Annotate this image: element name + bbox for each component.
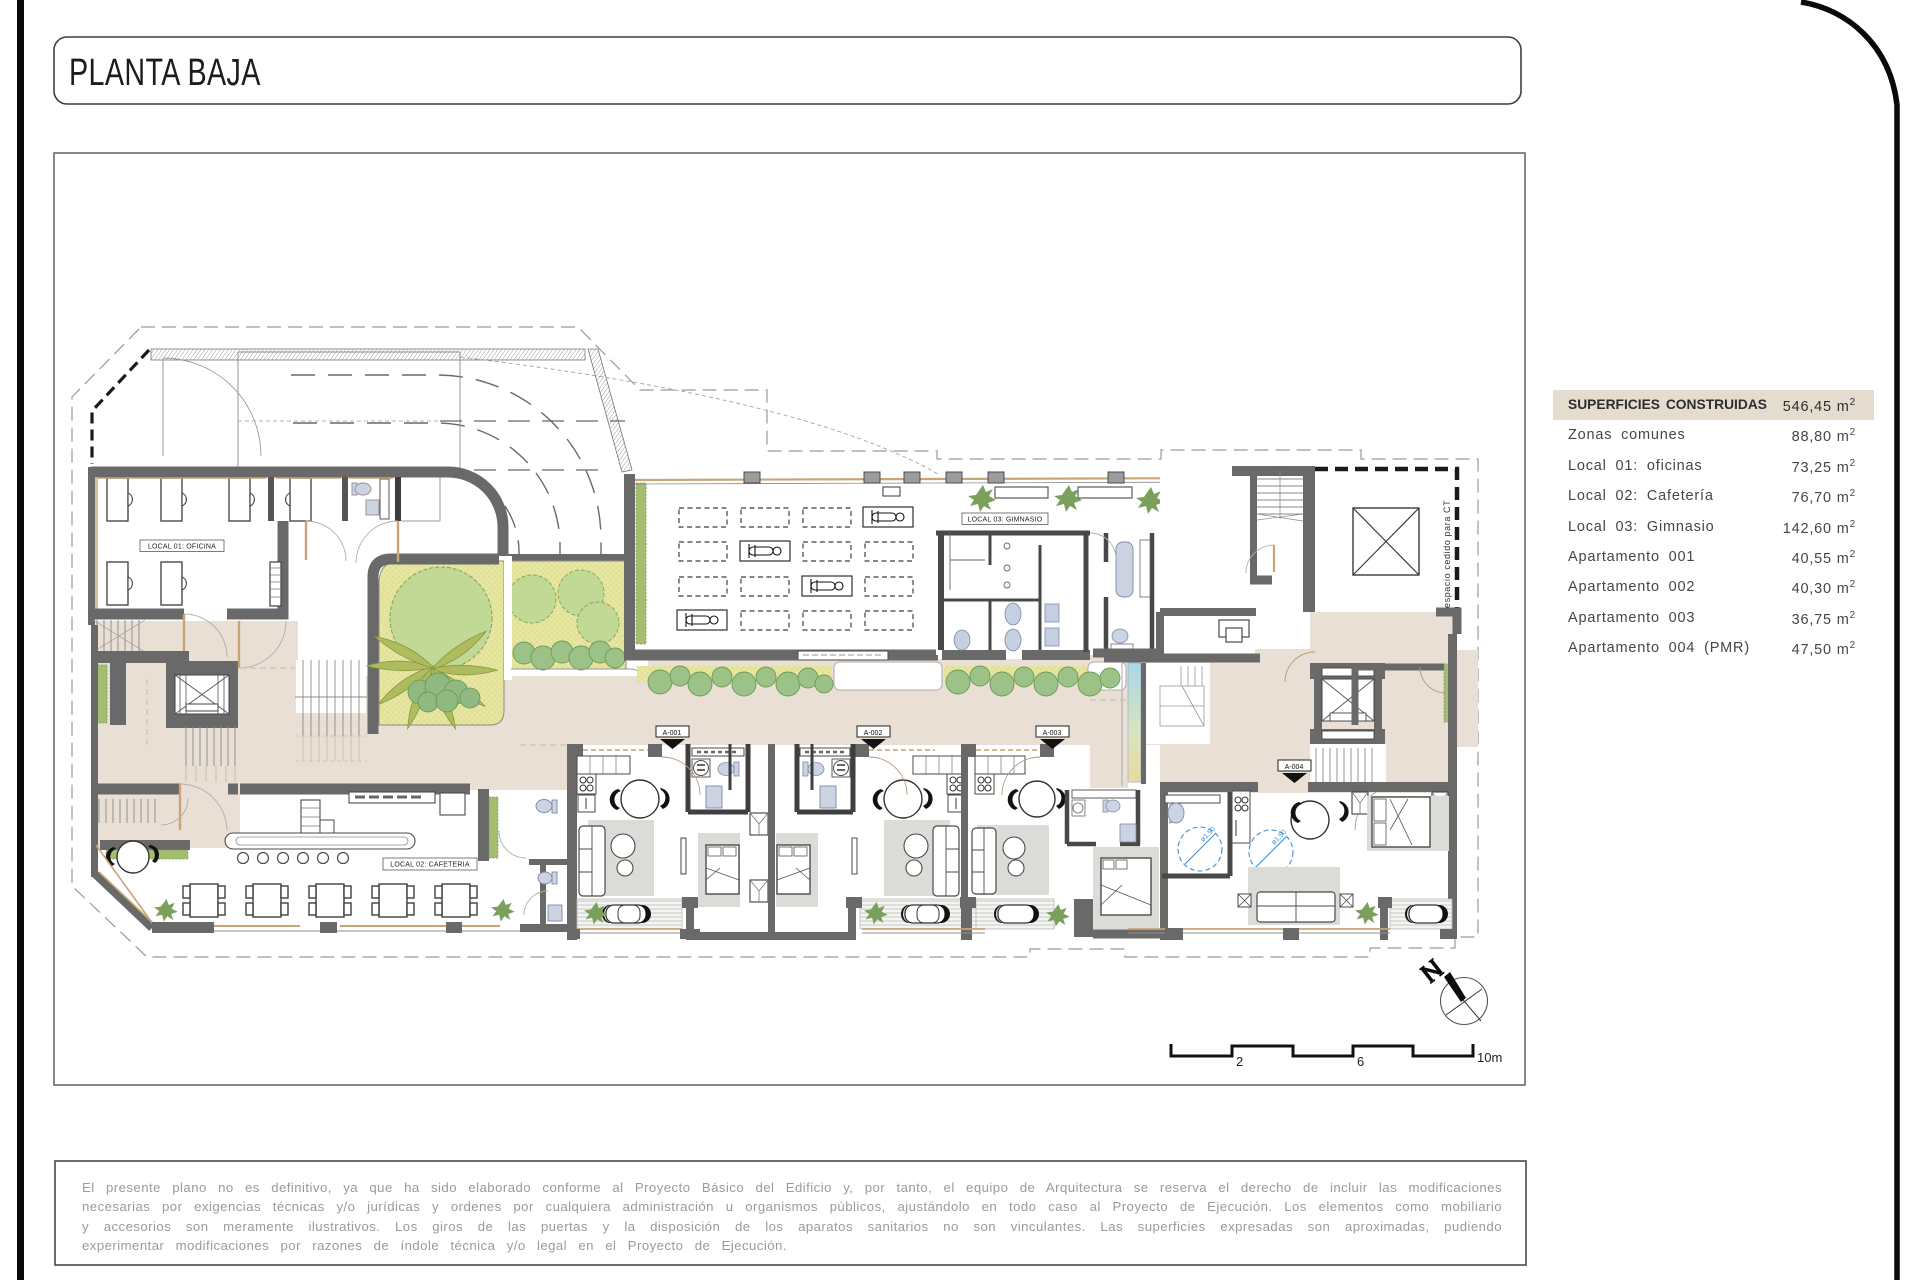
svg-text:LOCAL 03: GIMNASIO: LOCAL 03: GIMNASIO [968,517,1043,524]
svg-text:LOCAL 02: CAFETERIA: LOCAL 02: CAFETERIA [390,862,470,869]
svg-text:espacio cedido para CT: espacio cedido para CT [1442,500,1452,608]
svg-text:A-002: A-002 [864,730,883,737]
svg-text:2: 2 [1236,1054,1243,1069]
svg-text:A-001: A-001 [663,730,682,737]
svg-text:LOCAL 01: OFICINA: LOCAL 01: OFICINA [148,544,216,551]
svg-text:10m: 10m [1477,1050,1502,1065]
svg-text:6: 6 [1357,1054,1364,1069]
svg-text:A-003: A-003 [1043,730,1062,737]
svg-text:A-004: A-004 [1285,764,1304,771]
